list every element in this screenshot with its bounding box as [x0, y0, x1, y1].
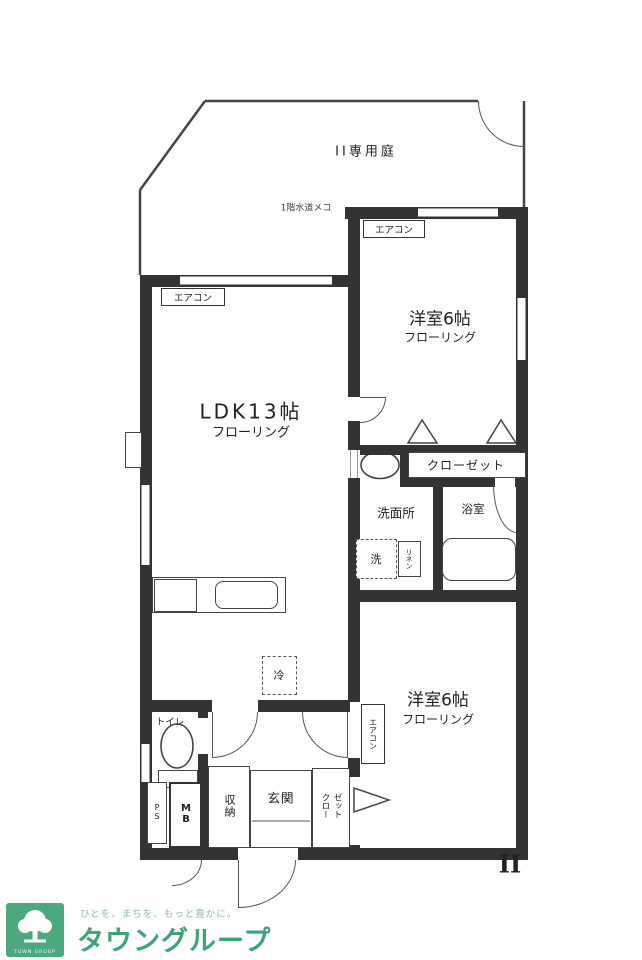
exterior-hatch [125, 432, 142, 468]
closet-door-triangle [354, 788, 389, 812]
bathtub [442, 538, 516, 581]
washbasin-icon [361, 452, 399, 479]
closet2-label-col1: クロー [319, 793, 331, 819]
garden-fence-diagonal [140, 101, 205, 190]
closet1-label: クローゼット [427, 457, 505, 474]
wall-segment [433, 487, 443, 590]
footer-tagline: ひとを、まちを、もっと豊かに。 [80, 906, 237, 920]
toilet-bowl-icon [161, 724, 193, 768]
tree-logo-icon [6, 903, 64, 957]
wall-segment [348, 207, 360, 397]
closet-door-triangle [408, 420, 437, 443]
wall-segment [400, 477, 495, 487]
closet-door-triangle [487, 420, 516, 443]
stove-box [154, 579, 197, 612]
toilet-label: トイレ [156, 714, 185, 728]
wall-segment [348, 590, 528, 602]
wall-segment [298, 848, 528, 860]
water-note: 1階水道メコ [281, 201, 332, 214]
window-marker [141, 744, 150, 782]
pipe-space-label: PS [153, 803, 162, 821]
aircon-label: エアコン [368, 718, 379, 750]
wall-segment [140, 700, 212, 712]
aircon-box: エアコン [161, 288, 225, 306]
ldk-floor: フローリング [212, 422, 290, 441]
logo-text: TOWN GROUP [6, 950, 64, 955]
fridge-label: 冷 [274, 667, 285, 683]
washer-label: 洗 [371, 551, 382, 567]
wall-segment [140, 848, 238, 860]
meter-box-label: MB [181, 803, 192, 825]
aircon-box: エアコン [361, 704, 385, 764]
storage-label: 収納 [221, 794, 237, 818]
footer-brand: タウングループ [77, 919, 271, 958]
unit-mark: II [499, 850, 521, 879]
window-marker [418, 208, 498, 217]
aircon-box: エアコン [363, 220, 425, 238]
window-marker [141, 485, 150, 565]
window-marker [517, 298, 526, 360]
aircon-label: エアコン [375, 222, 413, 236]
bedroom2-name: 洋室6帖 [407, 686, 469, 711]
logo-box: TOWN GROUP [6, 903, 64, 957]
floorplan-page: エアコン エアコン エアコン II専用庭 1階水道メコ 洋室6帖 フローリング … [0, 0, 642, 960]
bedroom1-floor: フローリング [404, 329, 476, 346]
bedroom1-name: 洋室6帖 [409, 305, 471, 330]
washroom-label: 洗面所 [377, 503, 415, 522]
wall-segment [198, 712, 208, 718]
closet2-label-col2: ゼット [331, 793, 343, 819]
linen-label: リネン [404, 549, 414, 570]
wall-segment [258, 700, 350, 712]
closet2-label: クローゼット [319, 793, 343, 823]
aircon-label: エアコン [174, 290, 212, 304]
entrance-label: 玄関 [267, 788, 294, 807]
garden-label: II専用庭 [335, 141, 397, 160]
entrance-step-line [252, 820, 310, 822]
bedroom2-floor: フローリング [402, 711, 474, 728]
wall-segment [348, 421, 360, 450]
entrance-area [250, 770, 312, 848]
window-marker [180, 276, 332, 285]
kitchen-sink [215, 581, 278, 609]
bath-label: 浴室 [462, 501, 485, 517]
sliding-door-marker [350, 450, 358, 478]
ldk-name: LDK13帖 [199, 396, 302, 425]
